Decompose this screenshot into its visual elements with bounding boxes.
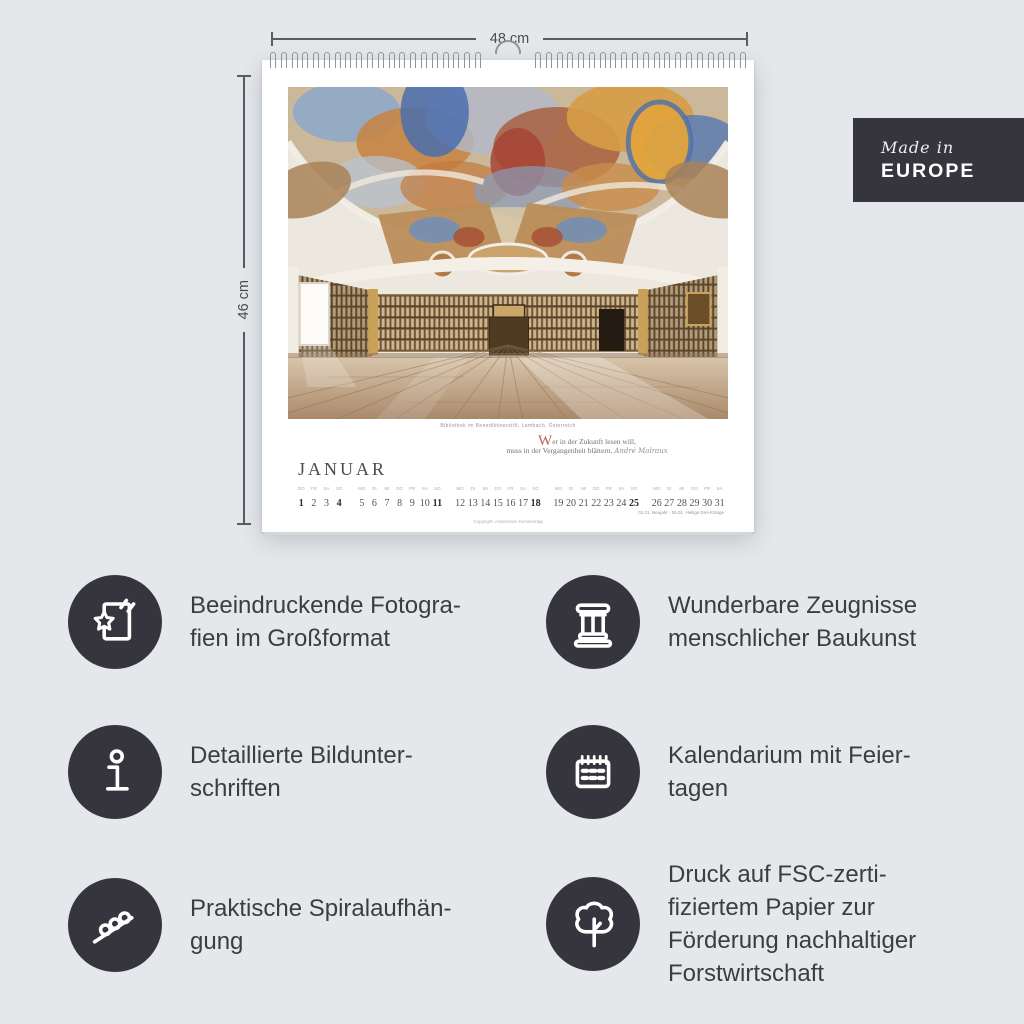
wire-loop [453, 52, 459, 68]
feature-text: Kalendarium mit Feier- tagen [668, 739, 911, 805]
day-cell: Mi21 [577, 486, 590, 511]
week-group: Do1Fr2Sa3So4 [295, 486, 345, 511]
wire-loop [610, 52, 616, 68]
day-cell: Fr30 [701, 486, 714, 511]
day-cell: Sa10 [418, 486, 431, 511]
info-icon [68, 725, 162, 819]
feature-text: Praktische Spiralaufhän- gung [190, 892, 451, 958]
height-dimension: 46 cm [236, 75, 252, 525]
date-number: 6 [372, 498, 377, 509]
spiral-binding-left [270, 52, 481, 72]
day-cell: Mi7 [381, 486, 394, 511]
date-number: 15 [493, 498, 503, 509]
holiday-note: 01.01. Neujahr · 06.01. Heilige Drei Kön… [638, 510, 724, 515]
date-number: 19 [553, 498, 563, 509]
wire-loop [697, 52, 703, 68]
weekday-label: So [628, 486, 641, 491]
weekday-label: Di [466, 486, 479, 491]
feature-text: Wunderbare Zeugnisse menschlicher Baukun… [668, 589, 917, 655]
date-number: 18 [531, 498, 541, 509]
date-number: 2 [311, 498, 316, 509]
day-cell: Do1 [295, 486, 308, 511]
month-title: JANUAR [298, 459, 387, 480]
date-number: 14 [480, 498, 490, 509]
feature-large-photos: Beeindruckende Fotogra- fien im Großform… [68, 575, 461, 669]
date-number: 5 [359, 498, 364, 509]
wire-loop [443, 52, 449, 68]
weekday-label: Do [295, 486, 308, 491]
date-number: 20 [566, 498, 576, 509]
date-number: 31 [715, 498, 725, 509]
day-cell: Do8 [393, 486, 406, 511]
date-number: 3 [324, 498, 329, 509]
day-cell: Mo12 [454, 486, 467, 511]
weekday-label: Di [663, 486, 676, 491]
wire-loop [432, 52, 438, 68]
wire-loop [535, 52, 541, 68]
wire-loop [686, 52, 692, 68]
wire-loop [367, 52, 373, 68]
date-number: 10 [420, 498, 430, 509]
day-cell: Sa3 [320, 486, 333, 511]
weekday-label: Fr [504, 486, 517, 491]
date-number: 1 [299, 498, 304, 509]
wire-loop [399, 52, 405, 68]
calendar-icon [546, 725, 640, 819]
feature-spiral: Praktische Spiralaufhän- gung [68, 878, 451, 972]
week-group: Mo5Di6Mi7Do8Fr9Sa10So11 [356, 486, 444, 511]
wire-loop [324, 52, 330, 68]
feature-text: Beeindruckende Fotogra- fien im Großform… [190, 589, 461, 655]
day-cell: Di13 [466, 486, 479, 511]
weekday-label: Mo [552, 486, 565, 491]
day-cell: Di20 [565, 486, 578, 511]
weekday-label: Mi [676, 486, 689, 491]
date-number: 12 [455, 498, 465, 509]
weekday-label: Mo [454, 486, 467, 491]
date-number: 29 [689, 498, 699, 509]
dimension-line [543, 38, 746, 40]
weekday-label: Fr [701, 486, 714, 491]
date-number: 27 [664, 498, 674, 509]
date-number: 24 [616, 498, 626, 509]
weekday-label: Mo [356, 486, 369, 491]
spiral-binding [270, 52, 746, 72]
spiral-binding-right [535, 52, 746, 72]
photo-caption: Bibliothek im Benediktinerstift, Lambach… [262, 423, 754, 429]
weekday-label: Di [368, 486, 381, 491]
wire-loop [389, 52, 395, 68]
day-cell: Mi14 [479, 486, 492, 511]
day-cell: Sa31 [713, 486, 726, 511]
tree-icon [546, 877, 640, 971]
date-number: 17 [518, 498, 528, 509]
dimension-line [243, 332, 245, 523]
weekday-label: Sa [418, 486, 431, 491]
date-number: 8 [397, 498, 402, 509]
wire-loop [643, 52, 649, 68]
day-cell: Mo26 [650, 486, 663, 511]
wire-loop [281, 52, 287, 68]
made-in-europe-badge: Made in EUROPE [853, 118, 1024, 202]
week-group: Mo12Di13Mi14Do15Fr16Sa17So18 [454, 486, 542, 511]
quote-line1: er in der Zukunft lesen will, [552, 437, 636, 446]
day-cell: Mo5 [356, 486, 369, 511]
day-cell: Fr16 [504, 486, 517, 511]
wire-loop [378, 52, 384, 68]
weekday-label: So [431, 486, 444, 491]
day-cell: Di6 [368, 486, 381, 511]
calendar-weeks: Do1Fr2Sa3So4Mo5Di6Mi7Do8Fr9Sa10So11Mo12D… [295, 486, 726, 511]
weekday-label: Do [590, 486, 603, 491]
spiral-icon [68, 878, 162, 972]
day-cell: Di27 [663, 486, 676, 511]
date-number: 25 [629, 498, 639, 509]
feature-text: Druck auf FSC-zerti- fiziertem Papier zu… [668, 858, 916, 990]
calendar-mockup: Bibliothek im Benediktinerstift, Lambach… [262, 60, 754, 532]
height-dimension-label: 46 cm [236, 268, 252, 332]
day-cell: Mi28 [676, 486, 689, 511]
day-cell: Fr2 [308, 486, 321, 511]
weekday-label: Sa [615, 486, 628, 491]
wire-loop [546, 52, 552, 68]
quote-attribution: André Malraux [614, 447, 667, 455]
day-cell: Fr23 [602, 486, 615, 511]
wire-loop [345, 52, 351, 68]
month-quote: Wer in der Zukunft lesen will, muss in d… [487, 437, 687, 456]
wire-loop [464, 52, 470, 68]
day-cell: Sa17 [517, 486, 530, 511]
weekday-label: Mi [577, 486, 590, 491]
date-number: 28 [677, 498, 687, 509]
date-number: 22 [591, 498, 601, 509]
weekday-label: Mi [479, 486, 492, 491]
wire-loop [421, 52, 427, 68]
date-number: 4 [337, 498, 342, 509]
day-cell: So11 [431, 486, 444, 511]
wire-loop [600, 52, 606, 68]
weekday-label: Di [565, 486, 578, 491]
day-cell: Do29 [688, 486, 701, 511]
date-number: 21 [579, 498, 589, 509]
badge-region-text: EUROPE [881, 160, 1024, 183]
wire-loop [356, 52, 362, 68]
weekday-label: Mi [381, 486, 394, 491]
library-illustration [288, 87, 728, 419]
wire-loop [475, 52, 481, 68]
wire-loop [313, 52, 319, 68]
quote-line2: muss in der Vergangenheit blättern. [506, 446, 612, 455]
day-cell: Do15 [492, 486, 505, 511]
day-cell: So4 [333, 486, 346, 511]
wire-loop [708, 52, 714, 68]
date-number: 23 [604, 498, 614, 509]
day-cell: Sa24 [615, 486, 628, 511]
date-number: 16 [505, 498, 515, 509]
weekday-label: Fr [308, 486, 321, 491]
wire-loop [740, 52, 746, 68]
date-number: 11 [433, 498, 442, 509]
dimension-line [243, 77, 245, 268]
feature-text: Detaillierte Bildunter- schriften [190, 739, 413, 805]
wire-loop [718, 52, 724, 68]
feature-fsc-paper: Druck auf FSC-zerti- fiziertem Papier zu… [546, 858, 916, 990]
wire-loop [589, 52, 595, 68]
weekday-label: Mo [650, 486, 663, 491]
wire-loop [567, 52, 573, 68]
date-number: 9 [410, 498, 415, 509]
feature-architecture: Wunderbare Zeugnisse menschlicher Baukun… [546, 575, 917, 669]
calendar-photo [288, 87, 728, 419]
dimension-line [273, 38, 476, 40]
weekday-label: Sa [517, 486, 530, 491]
weekday-label: Sa [713, 486, 726, 491]
badge-script-text: Made in [881, 138, 1024, 157]
wire-loop [270, 52, 276, 68]
week-group: Mo26Di27Mi28Do29Fr30Sa31 [650, 486, 726, 511]
wire-loop [302, 52, 308, 68]
date-number: 7 [385, 498, 390, 509]
dimension-tick [237, 523, 251, 525]
wire-loop [632, 52, 638, 68]
wire-loop [675, 52, 681, 68]
weekday-label: So [333, 486, 346, 491]
date-number: 26 [652, 498, 662, 509]
weekday-label: Fr [406, 486, 419, 491]
day-cell: So18 [529, 486, 542, 511]
day-cell: Mo19 [552, 486, 565, 511]
date-number: 13 [468, 498, 478, 509]
day-cell: Do22 [590, 486, 603, 511]
day-cell: So25 [628, 486, 641, 511]
day-cell: Fr9 [406, 486, 419, 511]
wire-loop [578, 52, 584, 68]
date-number: 30 [702, 498, 712, 509]
wire-loop [654, 52, 660, 68]
feature-captions: Detaillierte Bildunter- schriften [68, 725, 413, 819]
wire-loop [335, 52, 341, 68]
weekday-label: Sa [320, 486, 333, 491]
weekday-label: Do [688, 486, 701, 491]
dimension-tick [746, 32, 748, 46]
photo-star-icon [68, 575, 162, 669]
weekday-label: Fr [602, 486, 615, 491]
weekday-label: Do [492, 486, 505, 491]
weekday-label: So [529, 486, 542, 491]
feature-holidays: Kalendarium mit Feier- tagen [546, 725, 911, 819]
copyright-line: Copyright: Ackermann Kunstverlag [262, 519, 754, 524]
wire-loop [729, 52, 735, 68]
column-icon [546, 575, 640, 669]
wire-loop [292, 52, 298, 68]
weekday-label: Do [393, 486, 406, 491]
wire-loop [410, 52, 416, 68]
week-group: Mo19Di20Mi21Do22Fr23Sa24So25 [552, 486, 640, 511]
wire-loop [621, 52, 627, 68]
wire-loop [664, 52, 670, 68]
wire-loop [557, 52, 563, 68]
